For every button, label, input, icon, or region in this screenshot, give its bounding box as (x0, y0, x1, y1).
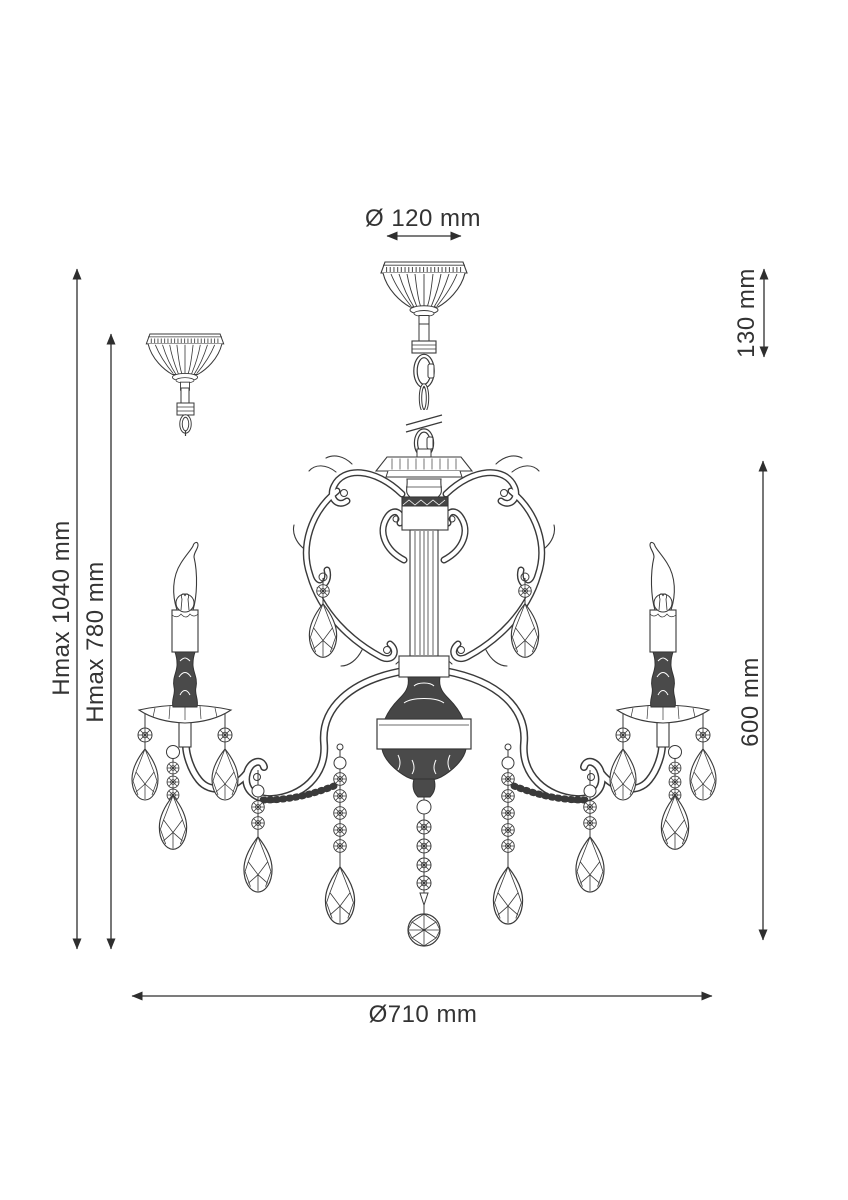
dim-label-fixture-diameter: Ø710 mm (369, 1001, 478, 1029)
dim-label-fixture-height: 600 mm (737, 657, 765, 747)
dim-label-hmax-reduced: Hmax 780 mm (82, 561, 110, 723)
ceiling-cup-detail-drawing (146, 334, 223, 436)
dim-label-canopy-diameter: Ø 120 mm (365, 205, 481, 233)
technical-drawing-canvas: Ø 120 mm 130 mm Hmax 1040 mm Hmax 780 mm… (0, 0, 848, 1200)
dim-label-ceiling-offset: 130 mm (733, 268, 761, 358)
chandelier-right-half-drawing (432, 456, 716, 924)
chandelier-left-half-drawing (132, 456, 416, 924)
dim-label-hmax-full: Hmax 1040 mm (48, 520, 76, 695)
chandelier-central-body-drawing (376, 262, 472, 946)
